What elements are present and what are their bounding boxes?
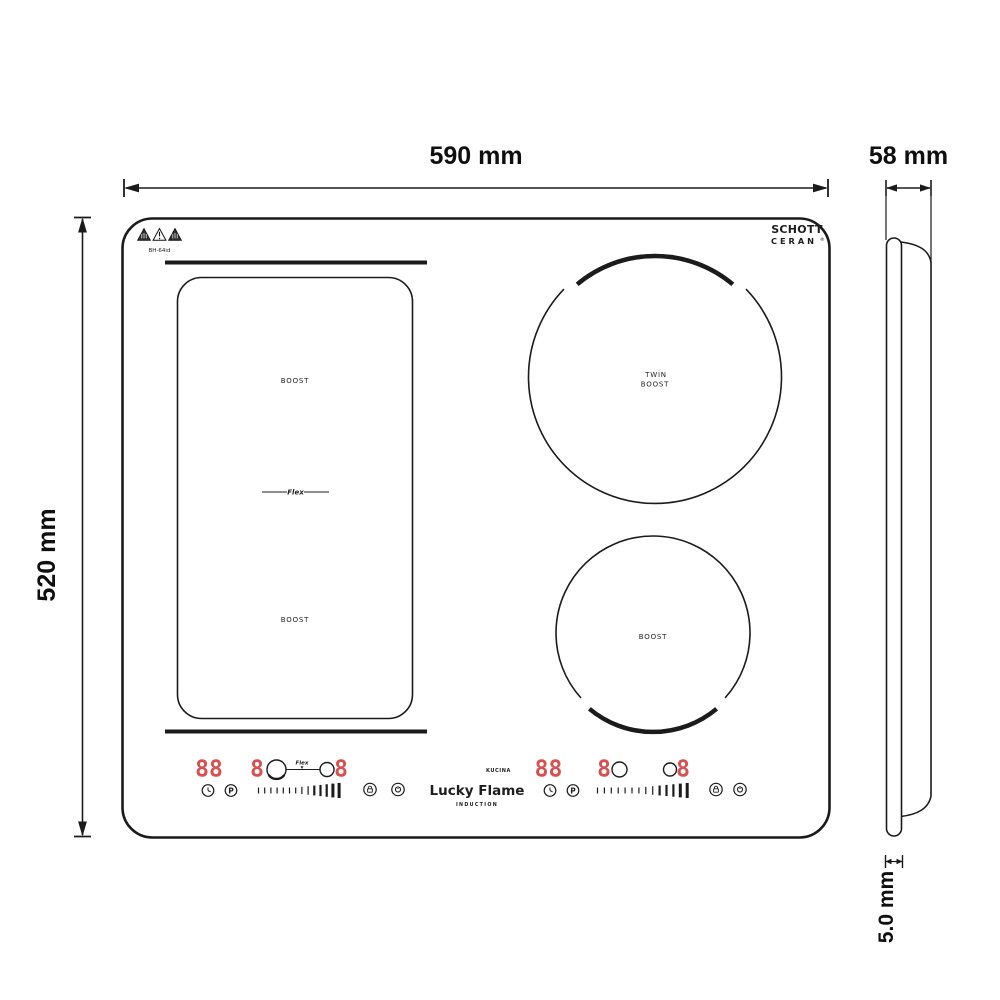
p-key-letter: P (570, 786, 576, 795)
model-number: BH-64id (149, 248, 171, 254)
twin-label-line2: BOOST (641, 381, 669, 389)
brand-tagline: INDUCTION (456, 802, 498, 808)
lock-body (714, 789, 719, 792)
power-icon (392, 783, 404, 795)
power-ring (392, 783, 404, 795)
height-dimension-label: 520 mm (33, 508, 61, 601)
arrowhead-left (124, 184, 139, 193)
registered-trademark: ® (820, 236, 825, 243)
flex-zone-outline (178, 278, 413, 719)
power-level-icon: P (225, 785, 237, 797)
ceran-wordmark: CERAN (771, 236, 817, 246)
flex-bridge-label: Flex (296, 761, 309, 767)
lock-ring (364, 783, 376, 795)
schott-wordmark: SCHOTT (771, 223, 823, 236)
boost-label: BOOST (639, 633, 667, 641)
exclamation-dot (159, 238, 161, 240)
zone-circle (529, 289, 782, 503)
diagram-canvas: 590 mm 520 mm BH-64id SCHOTT CERAN ® (0, 0, 1000, 1000)
warning-icons (138, 229, 182, 241)
zone-level-display: 8 (334, 757, 348, 783)
zone-level-display: 8 (250, 757, 264, 783)
power-level-icon: P (567, 785, 579, 797)
keylock-icon (364, 783, 376, 795)
hob-outline (123, 219, 830, 838)
arrowhead-right (920, 184, 931, 191)
glass-panel-profile (887, 238, 902, 836)
flex-boost-bottom-label: BOOST (281, 616, 309, 624)
boost-zone: BOOST (556, 536, 750, 732)
glass-thickness-label: 5.0 mm (875, 871, 898, 943)
timer-display: 88 (535, 757, 563, 783)
depth-dimension-label: 58 mm (869, 142, 948, 170)
arrowhead-left (886, 184, 897, 191)
boost-arc-top (577, 256, 733, 284)
timer-clock-icon (544, 785, 556, 797)
twin-zone-key (612, 762, 627, 777)
lock-body (368, 789, 373, 792)
boost-zone-key (664, 763, 677, 776)
p-key-letter: P (228, 786, 234, 795)
schott-ceran-logo: SCHOTT CERAN ® (771, 223, 825, 246)
product-dimension-diagram: 590 mm 520 mm BH-64id SCHOTT CERAN ® (0, 0, 1000, 1000)
power-ring (734, 783, 746, 795)
arrowhead-up (78, 218, 87, 233)
arrowhead-right (813, 184, 828, 193)
flex-bridge-arrow (301, 766, 304, 769)
lock-ring (710, 783, 722, 795)
flex-zone-label: Flex (287, 489, 304, 497)
boost-arc-bottom (589, 709, 716, 732)
dimension-height: 520 mm (33, 218, 91, 837)
dimension-width: 590 mm (124, 142, 828, 197)
power-icon (734, 783, 746, 795)
right-control-panel: 88 P 8 8 (535, 757, 747, 799)
clock-hand (550, 791, 553, 792)
clock-hand (208, 791, 211, 792)
timer-display: 88 (195, 757, 223, 783)
brand-logo: KUCINA Lucky Flame INDUCTION (430, 768, 525, 808)
flex-cooking-zone: BOOST Flex BOOST (165, 263, 427, 732)
arrowhead-left (886, 859, 892, 865)
zone-level-display: 8 (597, 757, 611, 783)
twin-label-line1: TWIN (644, 371, 667, 379)
width-dimension-label: 590 mm (429, 142, 522, 170)
power-slider (259, 783, 340, 798)
side-profile-view: 58 mm 5.0 mm (869, 142, 948, 943)
flex-boost-top-label: BOOST (281, 377, 309, 385)
hob-body-profile (901, 242, 931, 817)
keylock-icon (710, 783, 722, 795)
arrowhead-down (78, 822, 87, 837)
brand-series: KUCINA (486, 768, 511, 774)
flex-right-zone-key (320, 763, 334, 777)
zone-circle (556, 536, 750, 698)
brand-name: Lucky Flame (430, 783, 525, 799)
twin-boost-zone: TWIN BOOST (529, 256, 782, 503)
left-control-panel: 88 P 8 Flex 8 (195, 757, 404, 799)
zone-level-display: 8 (676, 757, 690, 783)
zone-key-boost-arc (269, 775, 285, 779)
power-slider (598, 783, 688, 798)
arrowhead-right (897, 859, 903, 865)
timer-clock-icon (202, 785, 214, 797)
